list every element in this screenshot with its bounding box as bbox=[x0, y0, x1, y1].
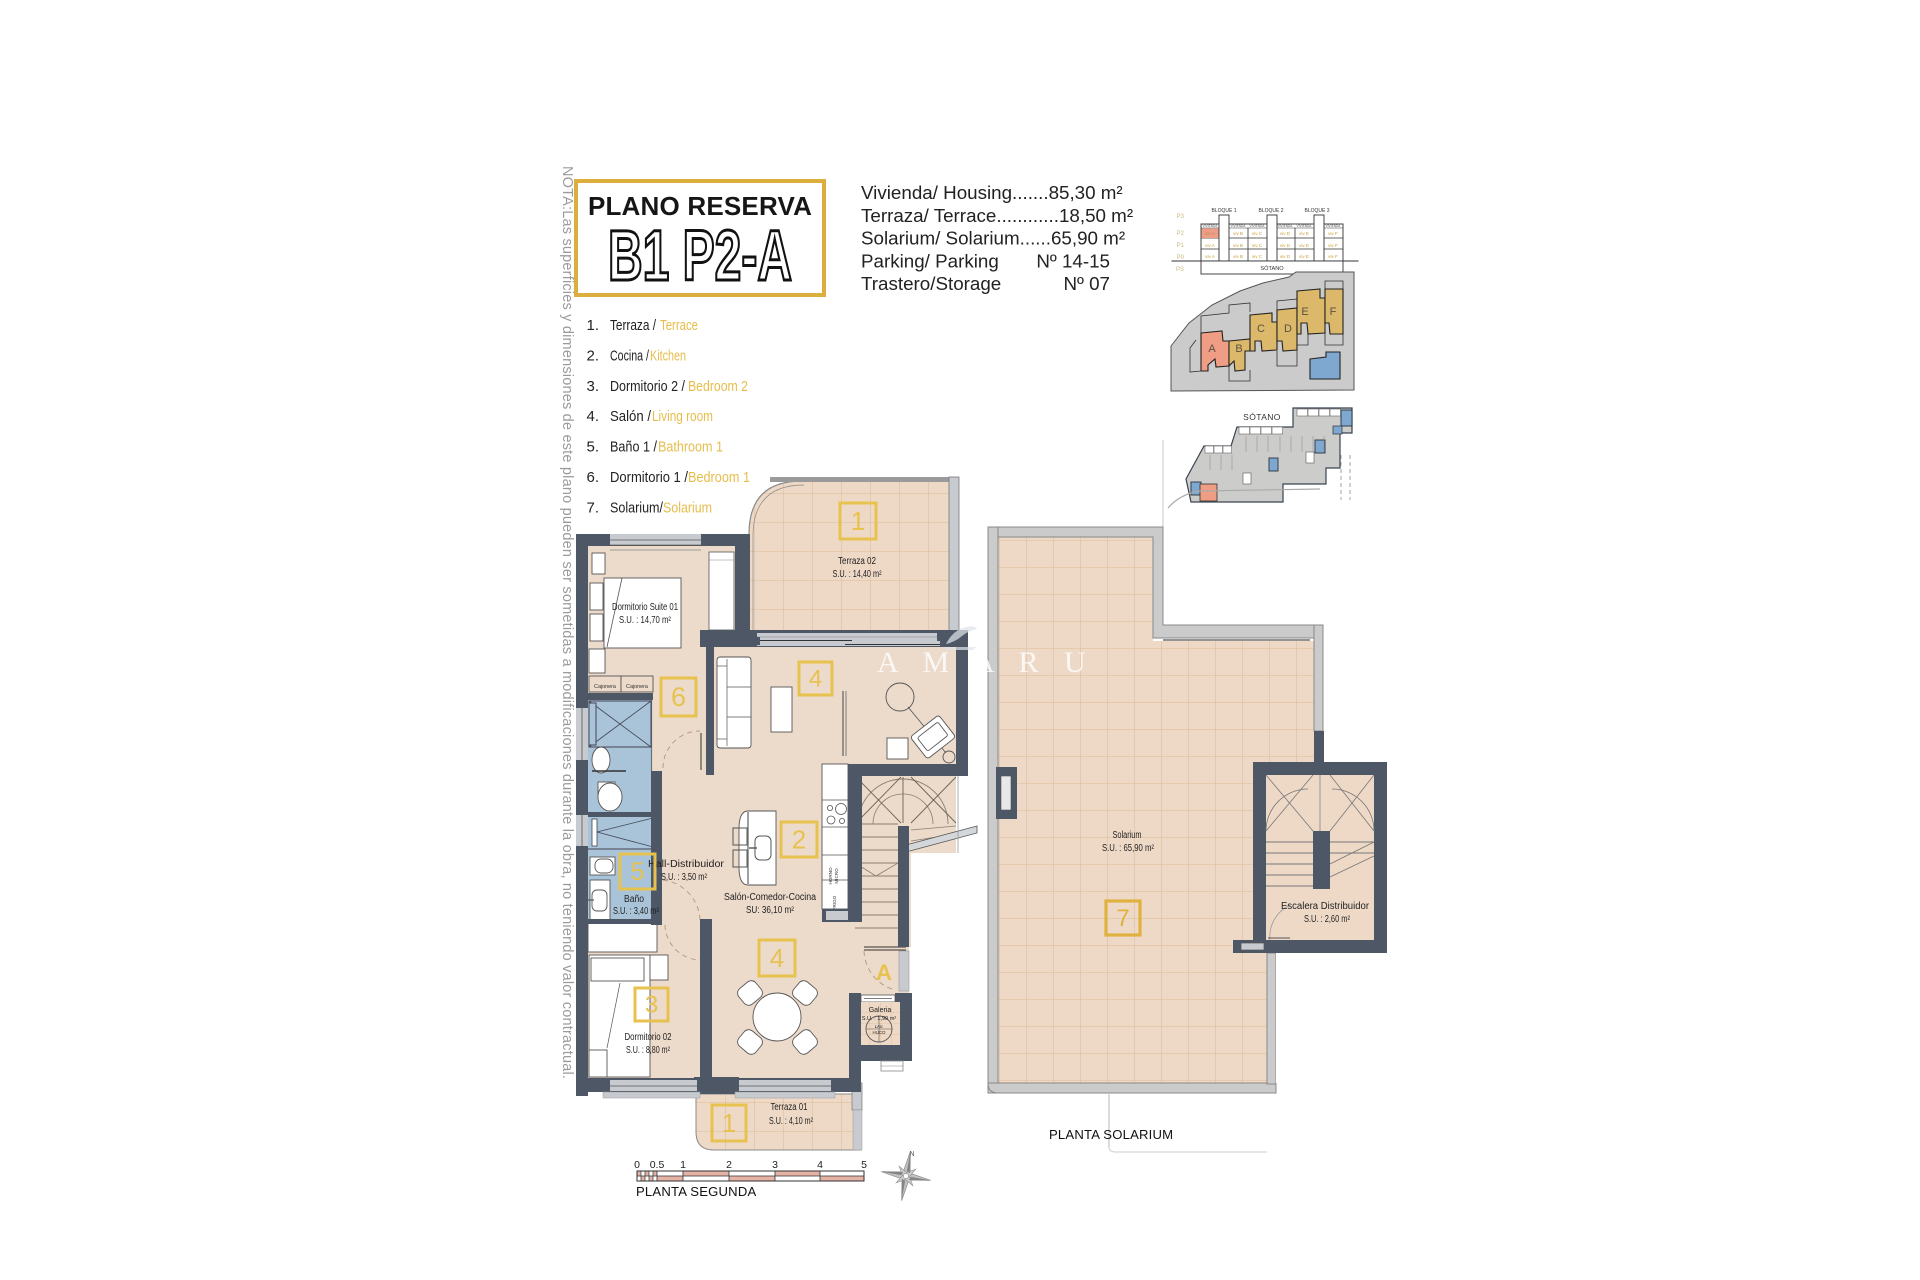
svg-text:S.U. : 1,90 m²: S.U. : 1,90 m² bbox=[862, 1016, 897, 1022]
svg-text:2: 2 bbox=[792, 824, 806, 854]
svg-text:viv B: viv B bbox=[1233, 243, 1243, 248]
svg-text:D: D bbox=[1284, 323, 1292, 335]
svg-text:VIVIENDA: VIVIENDA bbox=[1231, 224, 1247, 228]
svg-text:VIVIENDA: VIVIENDA bbox=[1250, 224, 1266, 228]
svg-text:A: A bbox=[1208, 343, 1216, 355]
svg-text:Salón /: Salón / bbox=[610, 408, 652, 425]
svg-text:SÓTANO: SÓTANO bbox=[1243, 412, 1281, 422]
svg-text:Terraza 02: Terraza 02 bbox=[838, 556, 876, 567]
svg-text:viv C: viv C bbox=[1252, 231, 1263, 236]
svg-text:C: C bbox=[1257, 323, 1265, 335]
svg-text:P0: P0 bbox=[1177, 255, 1185, 261]
svg-text:viv D: viv D bbox=[1280, 243, 1291, 248]
svg-text:viv E: viv E bbox=[1299, 231, 1309, 236]
svg-text:PLANTA SEGUNDA: PLANTA SEGUNDA bbox=[636, 1184, 756, 1199]
svg-text:5.: 5. bbox=[586, 439, 599, 456]
svg-text:viv E: viv E bbox=[1299, 254, 1309, 259]
svg-text:F: F bbox=[1330, 306, 1337, 318]
svg-text:HORNO: HORNO bbox=[828, 867, 833, 885]
svg-text:Solarium: Solarium bbox=[663, 499, 712, 516]
svg-text:1: 1 bbox=[680, 1159, 686, 1171]
svg-text:S.U. : 4,10 m²: S.U. : 4,10 m² bbox=[769, 1116, 814, 1127]
svg-text:MICRO: MICRO bbox=[834, 868, 839, 884]
svg-text:viv D: viv D bbox=[1280, 231, 1291, 236]
svg-text:S.U. : 14,40 m²: S.U. : 14,40 m² bbox=[833, 569, 883, 580]
svg-text:B: B bbox=[1235, 343, 1242, 355]
svg-text:viv B: viv B bbox=[1233, 231, 1243, 236]
svg-text:S.U. : 3,40 m²: S.U. : 3,40 m² bbox=[613, 906, 660, 917]
svg-text:VIVIENDA: VIVIENDA bbox=[1326, 224, 1342, 228]
svg-text:1: 1 bbox=[722, 1108, 736, 1138]
svg-text:Terrace: Terrace bbox=[660, 317, 698, 334]
svg-text:4.: 4. bbox=[586, 408, 599, 425]
svg-text:Solarium/: Solarium/ bbox=[610, 499, 664, 516]
svg-text:viv A: viv A bbox=[1205, 254, 1216, 259]
svg-text:BLOQUE 2: BLOQUE 2 bbox=[1258, 208, 1283, 214]
svg-text:0.5: 0.5 bbox=[650, 1159, 665, 1171]
svg-text:BLOQUE 1: BLOQUE 1 bbox=[1211, 208, 1236, 214]
svg-text:Vivienda/ Housing.......85,30: Vivienda/ Housing.......85,30 m² bbox=[861, 182, 1123, 203]
svg-text:Dormitorio 02: Dormitorio 02 bbox=[625, 1032, 672, 1043]
svg-text:4: 4 bbox=[809, 666, 822, 693]
svg-text:1.: 1. bbox=[586, 317, 599, 334]
svg-text:2: 2 bbox=[726, 1159, 732, 1171]
svg-text:VIVIENDA: VIVIENDA bbox=[1278, 224, 1294, 228]
svg-text:S.U. : 3,50 m²: S.U. : 3,50 m² bbox=[661, 872, 708, 883]
svg-text:2.: 2. bbox=[586, 347, 599, 364]
svg-text:A: A bbox=[876, 960, 892, 985]
svg-text:Solarium/ Solarium......65,90: Solarium/ Solarium......65,90 m² bbox=[861, 228, 1125, 249]
svg-text:Nº 07: Nº 07 bbox=[1063, 273, 1110, 294]
svg-text:SÓTANO: SÓTANO bbox=[1260, 265, 1284, 272]
svg-text:viv C: viv C bbox=[1252, 243, 1263, 248]
svg-text:S.U. : 8,80 m²: S.U. : 8,80 m² bbox=[626, 1045, 671, 1056]
svg-text:Dormitorio Suite 01: Dormitorio Suite 01 bbox=[612, 602, 678, 613]
svg-text:4: 4 bbox=[770, 943, 784, 973]
svg-text:SU: 36,10 m²: SU: 36,10 m² bbox=[746, 905, 795, 916]
svg-text:viv F: viv F bbox=[1328, 231, 1338, 236]
svg-text:Parking/ Parking: Parking/ Parking bbox=[861, 250, 999, 271]
svg-text:viv F: viv F bbox=[1328, 243, 1338, 248]
svg-text:3: 3 bbox=[645, 992, 658, 1019]
svg-text:7.: 7. bbox=[586, 499, 599, 516]
svg-text:viv C: viv C bbox=[1252, 254, 1263, 259]
svg-text:Hall-Distribuidor: Hall-Distribuidor bbox=[648, 859, 725, 870]
svg-text:Kitchen: Kitchen bbox=[650, 347, 686, 364]
svg-text:Dormitorio 1 /: Dormitorio 1 / bbox=[610, 469, 689, 486]
svg-text:Dormitorio 2 /: Dormitorio 2 / bbox=[610, 378, 686, 395]
svg-text:Bathroom 1: Bathroom 1 bbox=[658, 439, 723, 456]
svg-text:N: N bbox=[909, 1151, 914, 1158]
svg-text:VIVIENDA: VIVIENDA bbox=[1203, 224, 1219, 228]
svg-text:PLANTA SOLARIUM: PLANTA SOLARIUM bbox=[1049, 1127, 1173, 1142]
svg-text:HUCO: HUCO bbox=[873, 1030, 887, 1035]
svg-text:6: 6 bbox=[671, 682, 686, 712]
svg-text:4: 4 bbox=[817, 1159, 823, 1171]
svg-text:P3: P3 bbox=[1177, 214, 1185, 220]
svg-text:Bedroom 1: Bedroom 1 bbox=[688, 469, 750, 486]
svg-text:viv D: viv D bbox=[1280, 254, 1291, 259]
svg-text:5: 5 bbox=[861, 1159, 867, 1171]
svg-text:7: 7 bbox=[1116, 905, 1129, 932]
svg-text:Cajonera: Cajonera bbox=[626, 684, 648, 690]
svg-text:P2: P2 bbox=[1177, 231, 1185, 237]
svg-text:Terraza 01: Terraza 01 bbox=[771, 1102, 808, 1113]
svg-text:E: E bbox=[1301, 306, 1308, 318]
svg-text:B1 P2-A: B1 P2-A bbox=[608, 217, 792, 296]
svg-text:viv A: viv A bbox=[1205, 243, 1216, 248]
svg-text:1: 1 bbox=[851, 506, 865, 536]
svg-text:S.U. : 14,70 m²: S.U. : 14,70 m² bbox=[619, 615, 672, 626]
svg-text:6.: 6. bbox=[586, 469, 599, 486]
svg-text:Nº 14-15: Nº 14-15 bbox=[1036, 250, 1110, 271]
svg-text:Cocina /: Cocina / bbox=[610, 347, 650, 364]
svg-text:Terraza /: Terraza / bbox=[610, 317, 657, 334]
svg-text:3.: 3. bbox=[586, 378, 599, 395]
svg-text:A M A R U: A M A R U bbox=[877, 646, 1095, 679]
svg-text:3: 3 bbox=[772, 1159, 778, 1171]
svg-text:S.U. : 2,60 m²: S.U. : 2,60 m² bbox=[1304, 914, 1351, 925]
svg-text:Terraza/ Terrace............18: Terraza/ Terrace............18,50 m² bbox=[861, 205, 1133, 226]
svg-text:Baño: Baño bbox=[624, 894, 644, 905]
svg-text:Escalera Distribuidor: Escalera Distribuidor bbox=[1281, 901, 1370, 912]
svg-text:Salón-Comedor-Cocina: Salón-Comedor-Cocina bbox=[724, 892, 816, 903]
svg-text:Bedroom 2: Bedroom 2 bbox=[688, 378, 748, 395]
svg-text:PS: PS bbox=[1176, 267, 1184, 273]
svg-text:FRIGO: FRIGO bbox=[832, 895, 837, 910]
svg-text:viv F: viv F bbox=[1328, 254, 1338, 259]
svg-text:Cajonera: Cajonera bbox=[594, 684, 616, 690]
svg-text:Solarium: Solarium bbox=[1113, 830, 1142, 841]
svg-text:LAV.: LAV. bbox=[875, 1024, 884, 1029]
svg-text:Galeria: Galeria bbox=[869, 1007, 892, 1014]
svg-text:BLOQUE 3: BLOQUE 3 bbox=[1304, 208, 1329, 214]
svg-text:NOTA:Las superficies y dimensi: NOTA:Las superficies y dimensiones de es… bbox=[559, 166, 575, 1079]
svg-text:Baño 1 /: Baño 1 / bbox=[610, 439, 658, 456]
svg-text:P1: P1 bbox=[1177, 243, 1185, 249]
svg-text:0: 0 bbox=[634, 1159, 640, 1171]
svg-text:S.U. : 65,90 m²: S.U. : 65,90 m² bbox=[1102, 843, 1155, 854]
svg-text:viv E: viv E bbox=[1299, 243, 1309, 248]
svg-text:viv A: viv A bbox=[1205, 231, 1216, 236]
svg-text:Trastero/Storage: Trastero/Storage bbox=[861, 273, 1001, 294]
svg-text:VIVIENDA: VIVIENDA bbox=[1297, 224, 1313, 228]
svg-text:Living room: Living room bbox=[652, 408, 713, 425]
svg-text:viv B: viv B bbox=[1233, 254, 1243, 259]
svg-text:5: 5 bbox=[631, 858, 645, 886]
